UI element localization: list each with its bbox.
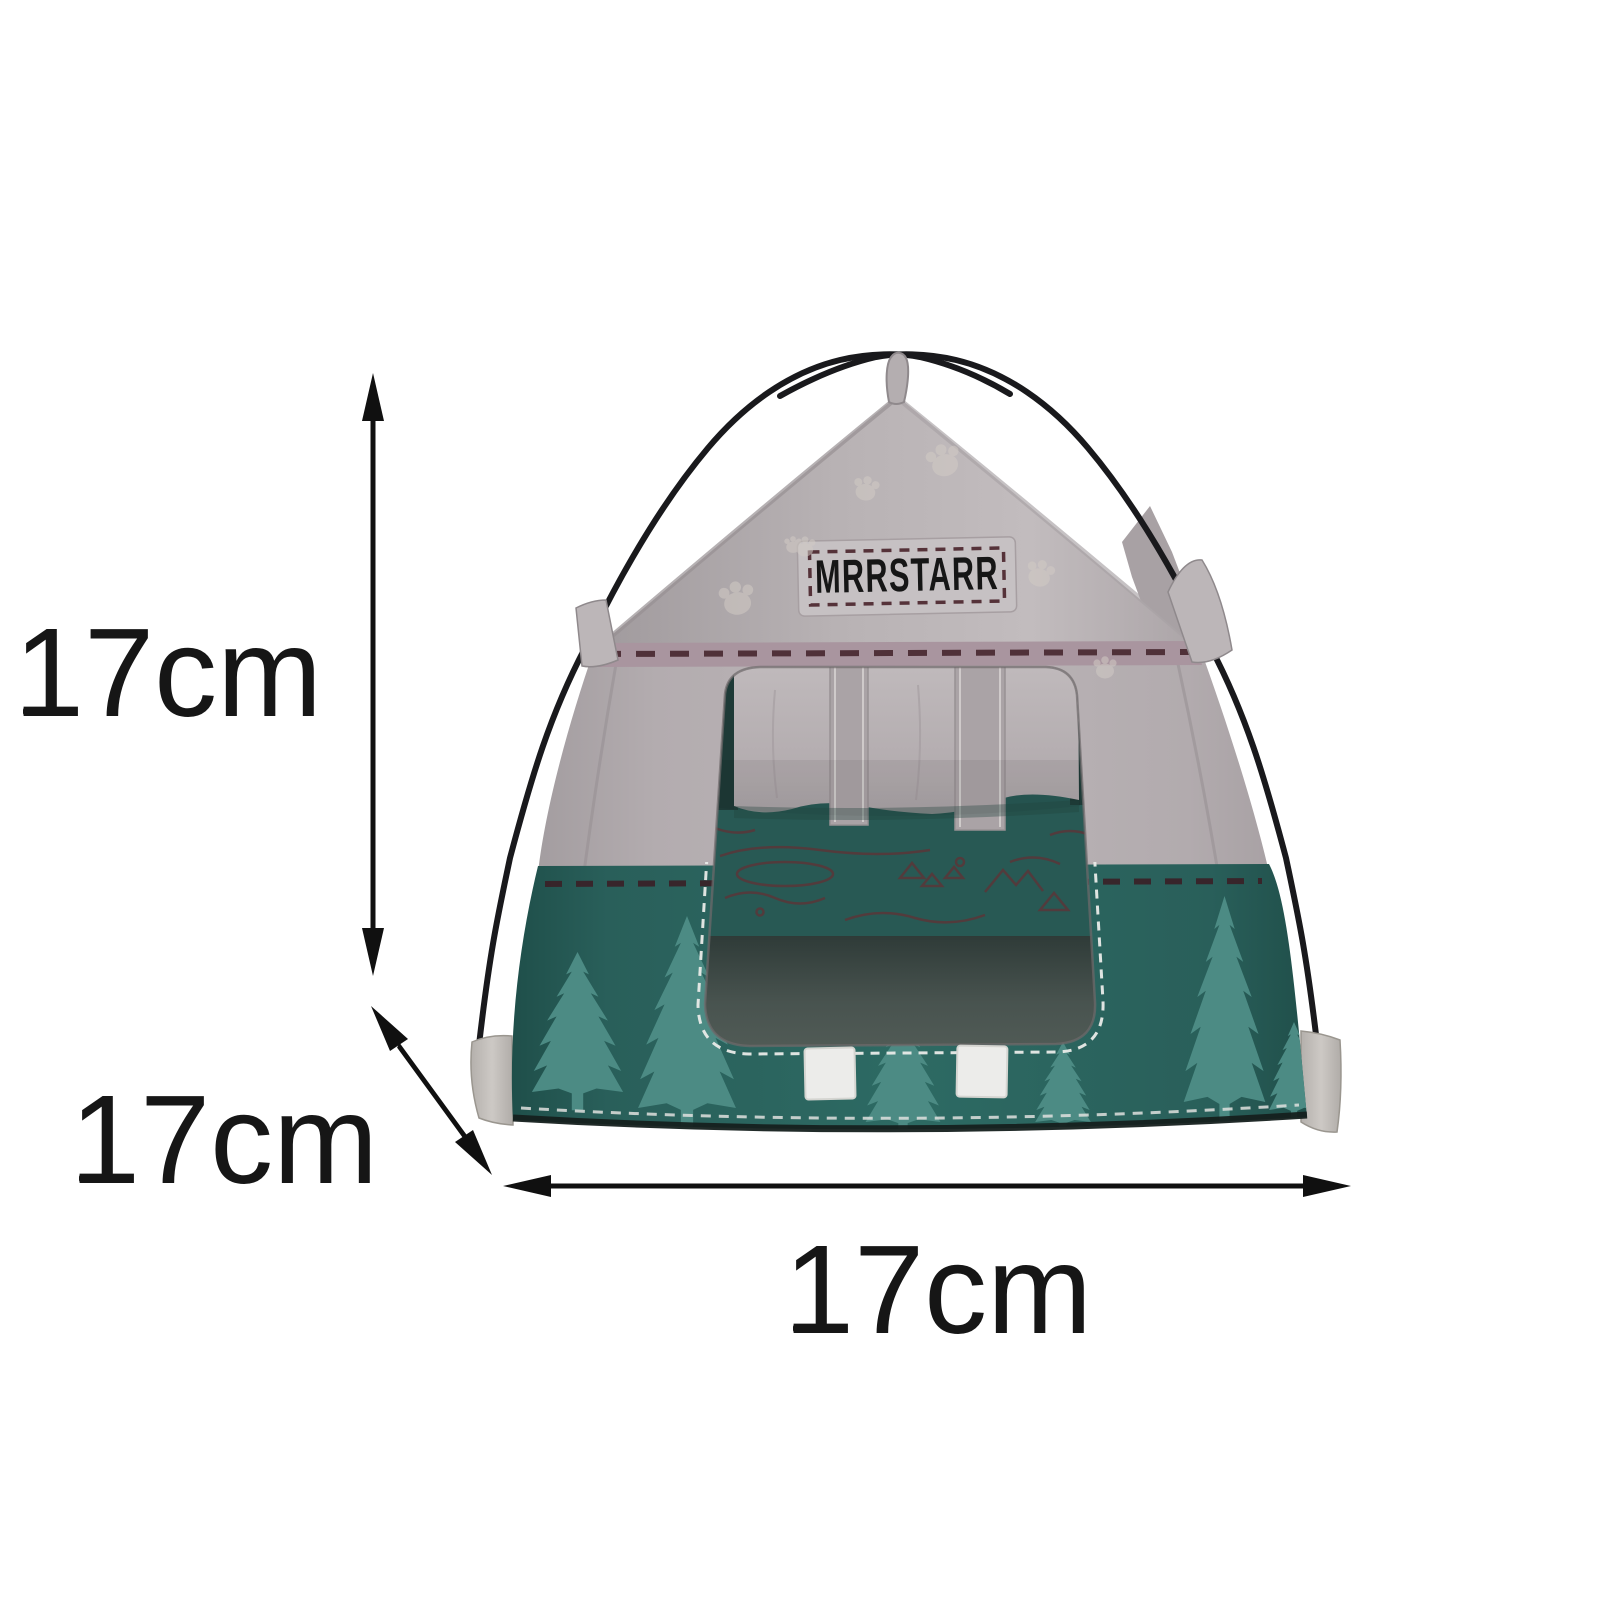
svg-text:17cm: 17cm (14, 602, 322, 743)
svg-text:17cm: 17cm (784, 1219, 1092, 1360)
svg-text:17cm: 17cm (70, 1069, 378, 1210)
svg-text:MRRSTARR: MRRSTARR (814, 546, 999, 603)
